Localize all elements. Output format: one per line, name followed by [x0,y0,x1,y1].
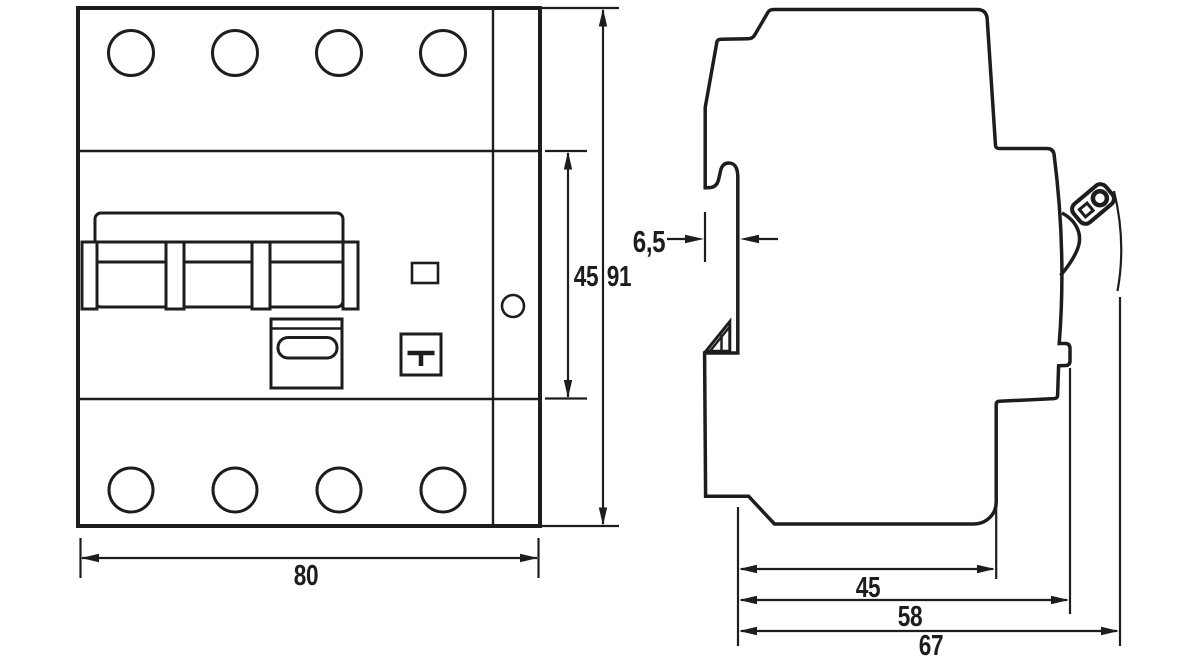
handle-tab [166,242,184,309]
arrow-right-icon [1101,627,1119,635]
din-claw-outline [706,322,730,352]
test-button [401,334,441,375]
arrow-left-icon [739,627,757,635]
handle-tab [343,242,358,309]
screw-hole-icon [502,295,524,317]
dim-label-total-depth: 67 [919,628,943,657]
arrow-left-icon [739,596,757,604]
arrow-right-icon [520,554,538,562]
din-claw [706,322,730,352]
din-clip-lever [1069,181,1117,226]
arrow-right-icon [685,235,704,243]
terminal-hole-icon [213,468,257,512]
handle-housing [95,213,343,307]
arrow-down-icon [599,508,607,526]
arrow-down-icon [564,380,572,398]
clip-swing-arc [1114,191,1121,291]
terminal-hole-icon [317,31,362,76]
dim-label-front-offset: 6,5 [633,224,665,259]
front-view: 45 91 80 [78,8,631,592]
handle-tab [252,242,270,309]
terminal-hole-icon [421,31,466,76]
arrow-right-icon [977,565,995,573]
breaker-dimension-drawing: 45 91 80 [0,0,1200,657]
dim-label-rail-depth: 45 [856,570,880,603]
handle-tab [82,242,97,309]
technical-drawing-canvas: 45 91 80 [0,0,1200,657]
handle-assembly [82,213,358,309]
indicator-window [412,263,438,283]
dim-label-module-height: 45 [574,259,598,292]
dim-label-height: 91 [607,259,631,292]
side-view: 6,5 45 58 67 [633,10,1121,657]
arrow-right-icon [1051,596,1069,604]
terminal-hole-icon [421,468,465,512]
arrow-left-icon [739,565,757,573]
arrow-up-icon [564,152,572,170]
rcd-switch [271,319,342,388]
terminal-hole-icon [109,468,153,512]
terminal-hole-icon [317,468,361,512]
switch-lever [278,338,337,359]
arrow-left-icon [81,554,99,562]
dim-label-width: 80 [294,558,318,591]
side-body-outline [705,10,1070,525]
terminal-hole-icon [109,31,154,76]
terminal-hole-icon [213,31,258,76]
arrow-up-icon [599,9,607,27]
